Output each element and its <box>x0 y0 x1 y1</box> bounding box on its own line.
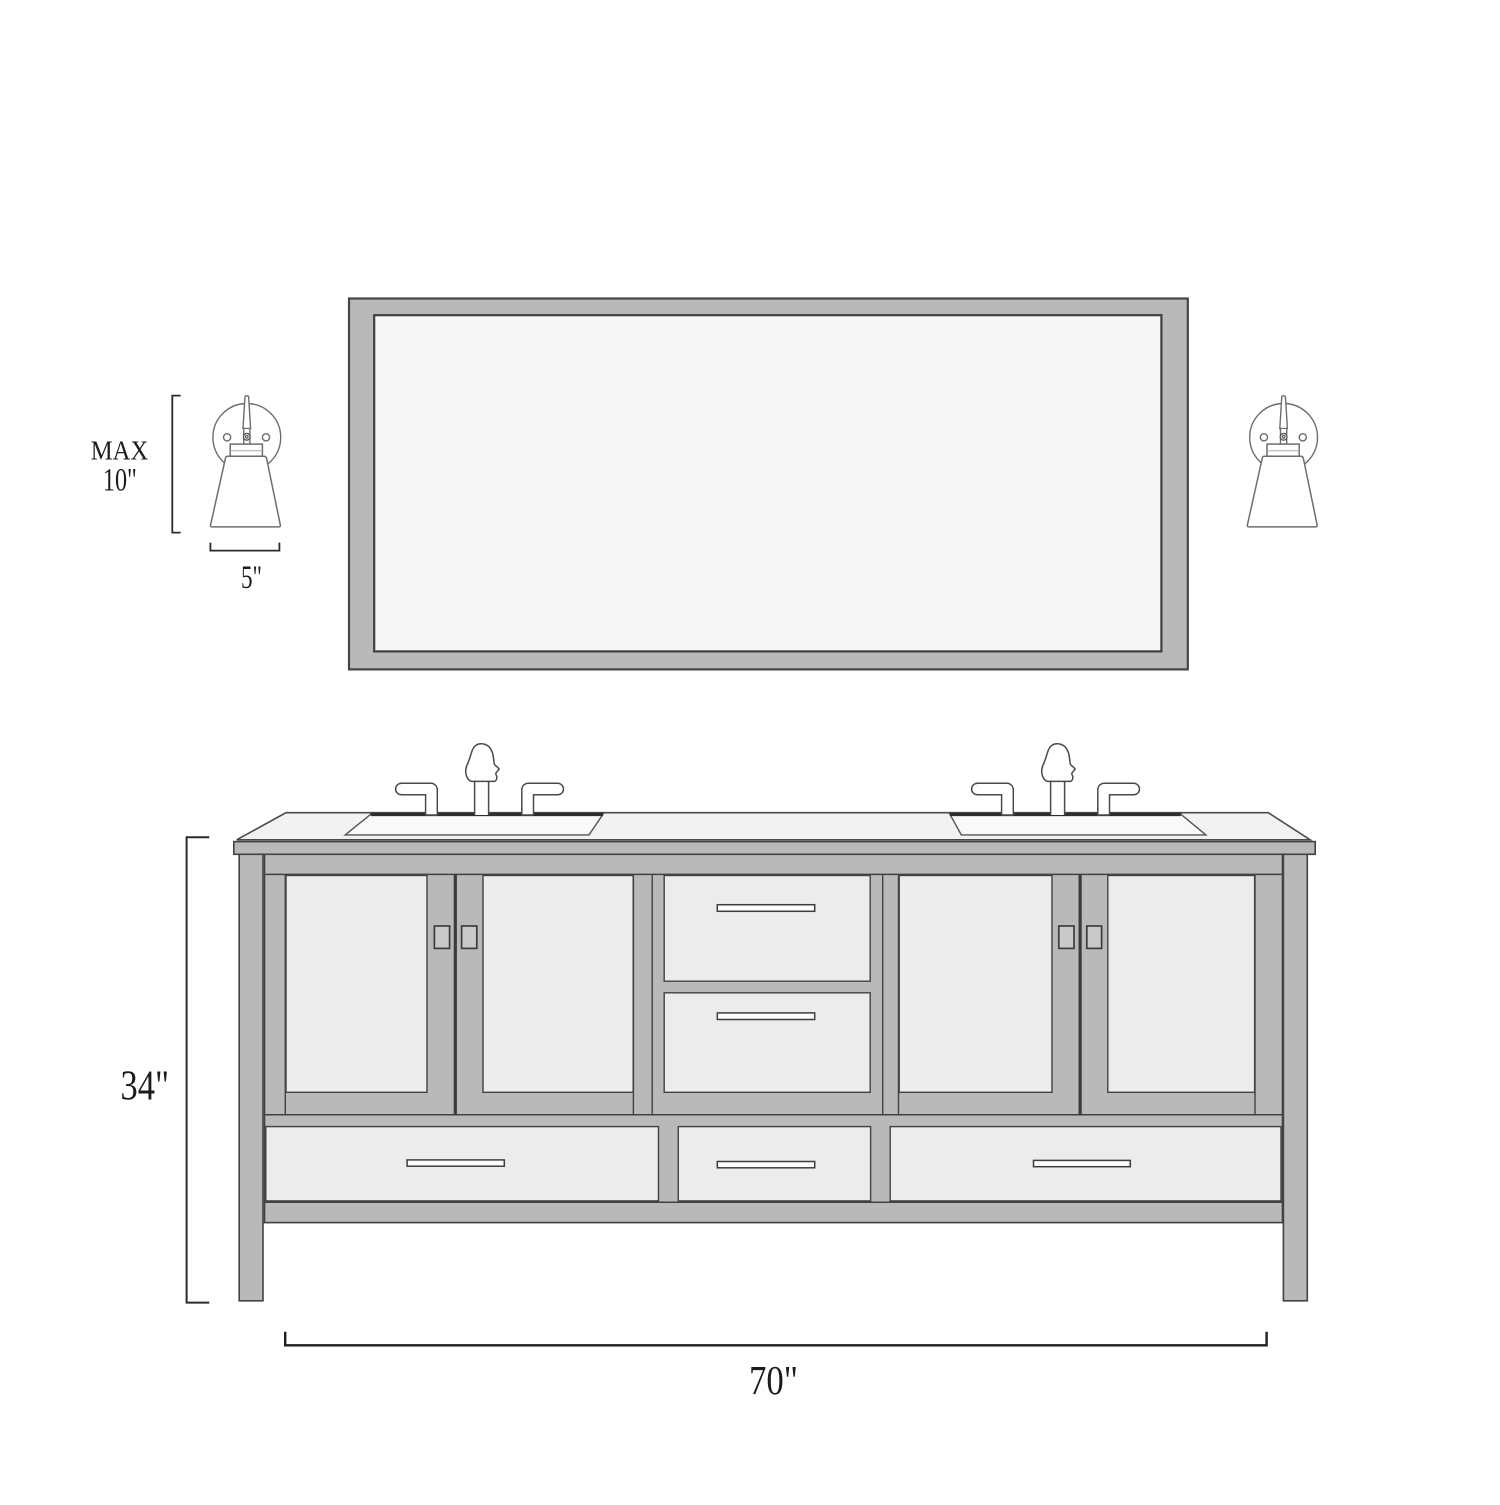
svg-text:5": 5" <box>241 560 262 596</box>
svg-text:34": 34" <box>121 1064 170 1110</box>
svg-text:70": 70" <box>749 1357 798 1403</box>
svg-text:MAX: MAX <box>91 436 149 466</box>
svg-text:10": 10" <box>103 462 137 498</box>
